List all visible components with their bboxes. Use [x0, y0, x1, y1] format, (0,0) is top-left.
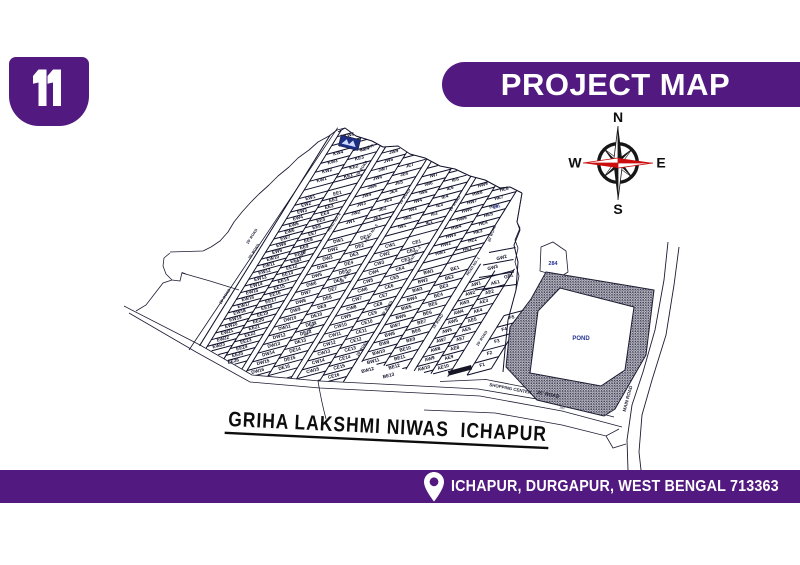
svg-text:JW4: JW4	[361, 191, 372, 198]
svg-text:AE4: AE4	[473, 307, 483, 314]
svg-text:F2: F2	[486, 350, 493, 356]
svg-text:JE4: JE4	[389, 188, 399, 195]
svg-text:284: 284	[548, 261, 558, 267]
svg-text:KE3: KE3	[354, 154, 364, 161]
svg-text:CE9: CE9	[367, 310, 377, 317]
svg-text:20' ROAD: 20' ROAD	[246, 228, 259, 245]
svg-text:AE6: AE6	[461, 326, 471, 333]
svg-text:BE3: BE3	[439, 283, 449, 290]
svg-text:HW3: HW3	[445, 232, 457, 240]
svg-text:CE6: CE6	[384, 283, 394, 290]
svg-text:JW6: JW6	[372, 174, 383, 181]
svg-text:DE4: DE4	[344, 260, 354, 267]
svg-text:JE5: JE5	[394, 179, 404, 186]
svg-text:BE2: BE2	[444, 274, 454, 281]
svg-text:F5: F5	[508, 314, 515, 320]
svg-text:KW1: KW1	[316, 176, 328, 184]
svg-text:HE8: HE8	[499, 185, 509, 192]
svg-text:KW2: KW2	[321, 167, 333, 175]
svg-text:BW12: BW12	[361, 366, 375, 374]
svg-text:HW7: HW7	[466, 198, 478, 206]
svg-text:HE1: HE1	[462, 245, 472, 252]
svg-text:HW6: HW6	[461, 206, 473, 214]
svg-text:E: E	[656, 155, 665, 171]
svg-text:BE4: BE4	[433, 292, 443, 299]
svg-text:IW2: IW2	[403, 214, 413, 221]
svg-text:POND: POND	[572, 336, 590, 342]
svg-text:HW9: HW9	[477, 181, 489, 189]
svg-text:AE7: AE7	[455, 335, 465, 342]
svg-text:IW7: IW7	[429, 172, 439, 179]
svg-text:JE6: JE6	[399, 170, 409, 177]
svg-text:BE7: BE7	[417, 318, 427, 325]
svg-text:AE2: AE2	[484, 288, 494, 295]
svg-text:HW1: HW1	[435, 249, 447, 257]
svg-text:KE1: KE1	[343, 172, 353, 179]
svg-text:IW3: IW3	[408, 206, 418, 213]
svg-text:JW1: JW1	[345, 218, 356, 225]
svg-text:JW5: JW5	[367, 183, 378, 190]
svg-text:JE3: JE3	[383, 197, 393, 204]
svg-text:HE3: HE3	[473, 228, 483, 235]
svg-text:AE3: AE3	[479, 298, 489, 305]
svg-text:F1: F1	[479, 362, 486, 368]
svg-text:AE1: AE1	[490, 279, 500, 286]
svg-text:CE8: CE8	[373, 301, 383, 308]
svg-text:AE9: AE9	[444, 354, 454, 361]
svg-text:JE1: JE1	[372, 214, 382, 221]
svg-text:HE4: HE4	[478, 219, 488, 226]
svg-text:JW9: JW9	[388, 148, 399, 155]
svg-text:GW2: GW2	[496, 254, 508, 262]
svg-text:HW5: HW5	[456, 215, 468, 223]
svg-text:282: 282	[559, 406, 565, 411]
svg-text:BE5: BE5	[428, 300, 438, 307]
svg-text:JW8: JW8	[383, 156, 394, 163]
svg-text:EW23: EW23	[212, 341, 226, 349]
svg-text:DE9: DE9	[317, 303, 327, 310]
svg-text:MANDIR: MANDIR	[359, 143, 375, 152]
svg-text:IW6: IW6	[424, 180, 434, 187]
svg-text:HE5: HE5	[483, 211, 493, 218]
svg-text:BE9: BE9	[406, 336, 416, 343]
svg-text:BE13: BE13	[382, 372, 395, 380]
svg-text:BE12: BE12	[388, 363, 401, 371]
svg-text:JW2: JW2	[350, 209, 361, 216]
svg-text:DE3: DE3	[349, 251, 359, 258]
svg-text:HE7: HE7	[494, 194, 504, 201]
svg-text:KW4: KW4	[332, 149, 344, 157]
svg-text:261: 261	[492, 203, 501, 210]
svg-text:JE7: JE7	[405, 162, 415, 169]
svg-text:BE8: BE8	[411, 327, 421, 334]
svg-text:AE5: AE5	[467, 316, 477, 323]
svg-text:HE2: HE2	[467, 236, 477, 243]
svg-text:CE5: CE5	[389, 274, 399, 281]
svg-text:JE2: JE2	[378, 205, 388, 212]
svg-text:DE7: DE7	[328, 286, 338, 293]
svg-text:CE1: CE1	[412, 238, 422, 245]
svg-text:S: S	[613, 201, 622, 217]
svg-text:IW1: IW1	[397, 223, 407, 230]
svg-text:CE7: CE7	[378, 292, 388, 299]
svg-text:IW4: IW4	[413, 197, 423, 204]
svg-text:HW2: HW2	[440, 240, 452, 248]
svg-text:BE1: BE1	[450, 265, 460, 272]
svg-text:JW3: JW3	[356, 200, 367, 207]
svg-text:GE1: GE1	[503, 272, 514, 279]
svg-text:F3: F3	[494, 338, 501, 344]
svg-text:N: N	[613, 109, 623, 125]
svg-text:JW7: JW7	[378, 165, 389, 172]
svg-text:HW4: HW4	[451, 223, 463, 231]
svg-text:W: W	[568, 155, 582, 171]
svg-text:HW8: HW8	[472, 189, 484, 197]
svg-text:KW3: KW3	[327, 158, 339, 166]
svg-text:IW5: IW5	[419, 189, 429, 196]
svg-text:AE8: AE8	[450, 344, 460, 351]
svg-text:KE2: KE2	[349, 163, 359, 170]
svg-text:CE4: CE4	[395, 265, 405, 272]
svg-text:GW3: GW3	[487, 264, 499, 272]
